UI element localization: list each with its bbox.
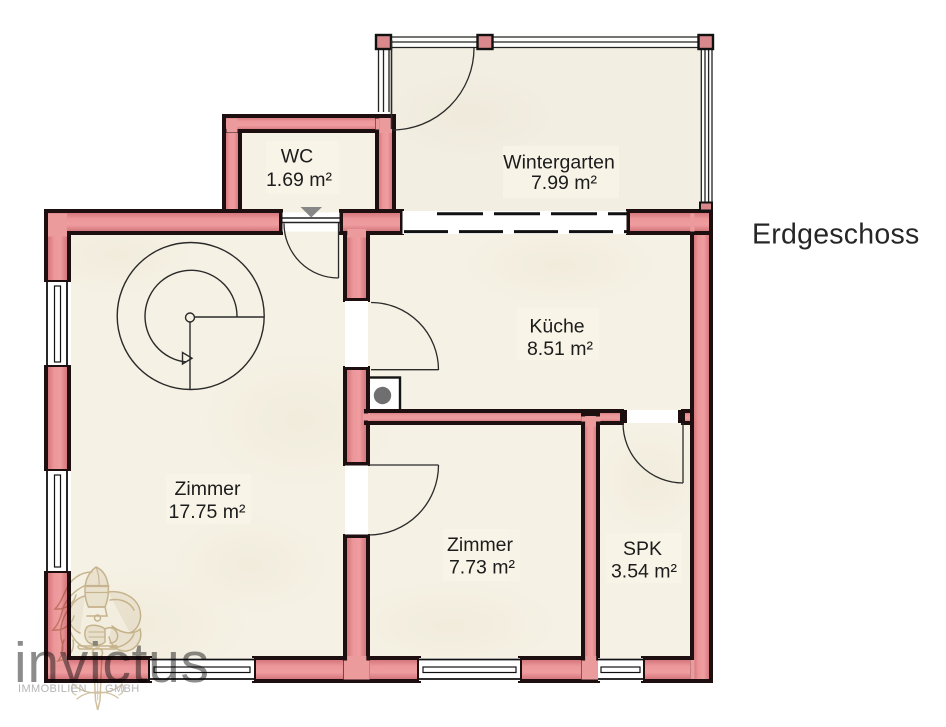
- svg-text:IMMOBILIEN: IMMOBILIEN: [18, 683, 87, 695]
- svg-text:GMBH: GMBH: [105, 683, 140, 695]
